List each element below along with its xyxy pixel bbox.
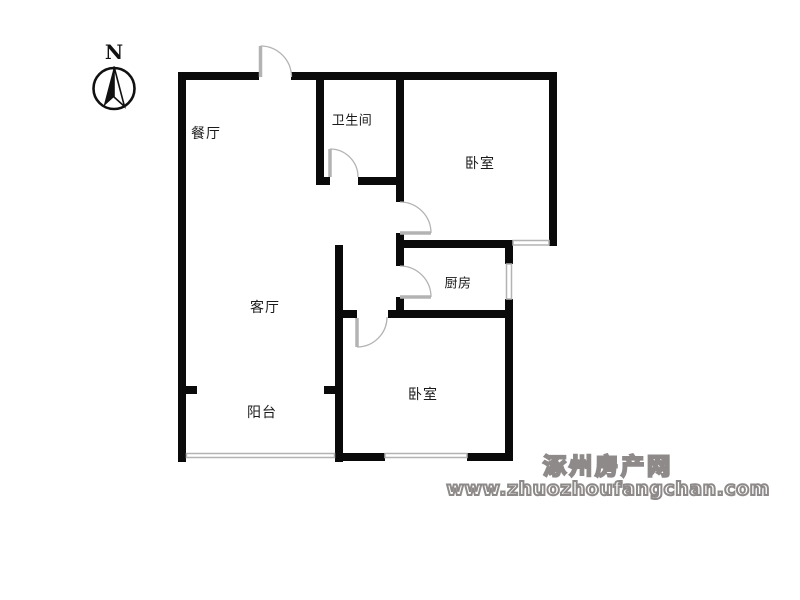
wall-kitchen-top — [396, 240, 512, 248]
wall-bedroom2-top-left — [343, 310, 357, 318]
floorplan-canvas: N 餐厅 卫生间 卧室 厨房 客厅 阳台 卧室 涿州房产网 www.zhuozh… — [0, 0, 800, 600]
floorplan-drawing — [0, 0, 800, 600]
room-label-living: 客厅 — [250, 297, 280, 317]
compass-north-label: N — [105, 40, 123, 64]
wall-bedroom2-top-right — [388, 310, 512, 318]
room-label-dining: 餐厅 — [191, 123, 221, 143]
entrance-door — [261, 46, 292, 77]
walls — [178, 72, 557, 462]
kitchen-right-window — [513, 241, 549, 246]
wall-bedroom2-bottom-right — [467, 453, 512, 461]
wall-top-left — [178, 72, 259, 80]
wall-kitchen-right-upper — [505, 240, 513, 264]
bedroom1-door — [400, 202, 431, 233]
wall-left — [178, 72, 186, 462]
wall-kitchen-bedroom-right — [505, 299, 513, 461]
wall-bathroom-bottom-right — [358, 177, 404, 185]
wall-top-right — [291, 72, 557, 80]
room-label-bedroom-top: 卧室 — [465, 153, 495, 173]
windows — [187, 241, 550, 458]
wall-hall-divider-mid — [396, 233, 404, 266]
doors — [261, 46, 432, 347]
bedroom2-door — [357, 317, 387, 347]
kitchen-door — [400, 266, 431, 297]
wall-central — [335, 245, 343, 462]
wall-balcony-stub-left — [186, 386, 197, 394]
wall-bedroom2-bottom-left — [343, 453, 385, 461]
wall-right — [549, 72, 557, 246]
kitchen-window — [507, 264, 512, 299]
bedroom2-window — [385, 454, 467, 458]
room-label-bathroom: 卫生间 — [332, 110, 373, 129]
room-label-balcony: 阳台 — [247, 402, 277, 422]
bathroom-door — [330, 149, 358, 177]
wall-balcony-stub-right — [324, 386, 335, 394]
wall-bathroom-bottom-left — [316, 177, 330, 185]
wall-bathroom-left — [316, 72, 324, 184]
north-compass-icon — [94, 67, 135, 110]
room-label-bedroom-bottom: 卧室 — [408, 384, 438, 404]
balcony-window — [187, 454, 335, 458]
room-label-kitchen: 厨房 — [444, 273, 471, 292]
